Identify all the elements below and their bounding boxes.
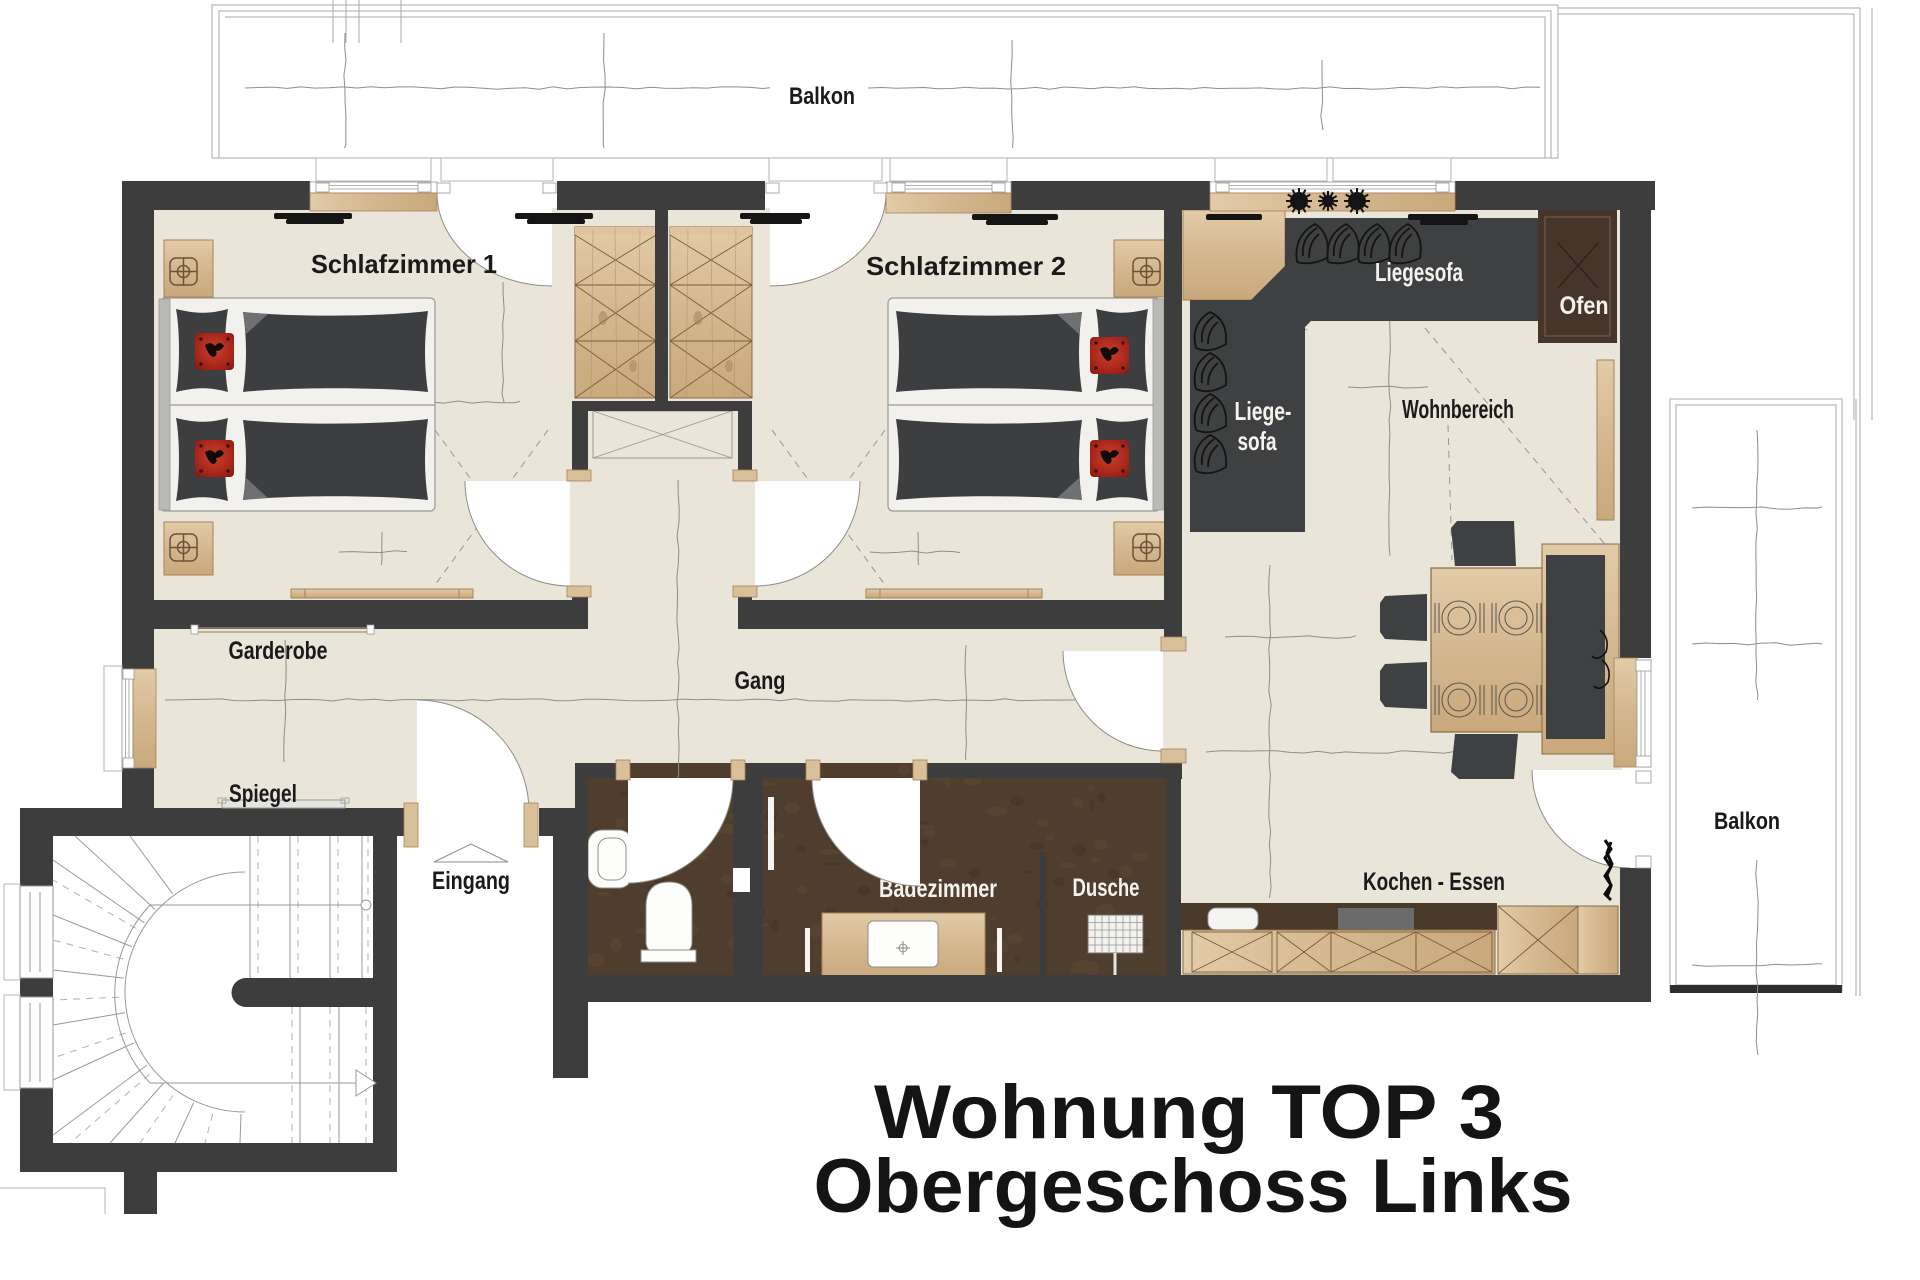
svg-text:Gang: Gang <box>735 667 786 695</box>
svg-text:Garderobe: Garderobe <box>229 637 328 665</box>
svg-text:Ofen: Ofen <box>1560 292 1609 320</box>
svg-text:Liege-: Liege- <box>1235 396 1292 426</box>
svg-text:sofa: sofa <box>1238 426 1277 456</box>
svg-text:Eingang: Eingang <box>432 867 510 895</box>
svg-text:Wohnbereich: Wohnbereich <box>1402 394 1514 424</box>
svg-text:Liegesofa: Liegesofa <box>1375 257 1463 287</box>
svg-text:Obergeschoss Links: Obergeschoss Links <box>814 1144 1573 1229</box>
svg-text:Kochen - Essen: Kochen - Essen <box>1363 868 1505 896</box>
svg-text:Dusche: Dusche <box>1073 874 1140 902</box>
svg-text:Schlafzimmer 1: Schlafzimmer 1 <box>311 249 497 279</box>
svg-text:Balkon: Balkon <box>789 83 855 110</box>
svg-text:Wohnung TOP 3: Wohnung TOP 3 <box>874 1070 1504 1155</box>
svg-text:Spiegel: Spiegel <box>229 780 297 808</box>
svg-text:Schlafzimmer 2: Schlafzimmer 2 <box>866 251 1066 281</box>
svg-text:Balkon: Balkon <box>1714 808 1780 835</box>
